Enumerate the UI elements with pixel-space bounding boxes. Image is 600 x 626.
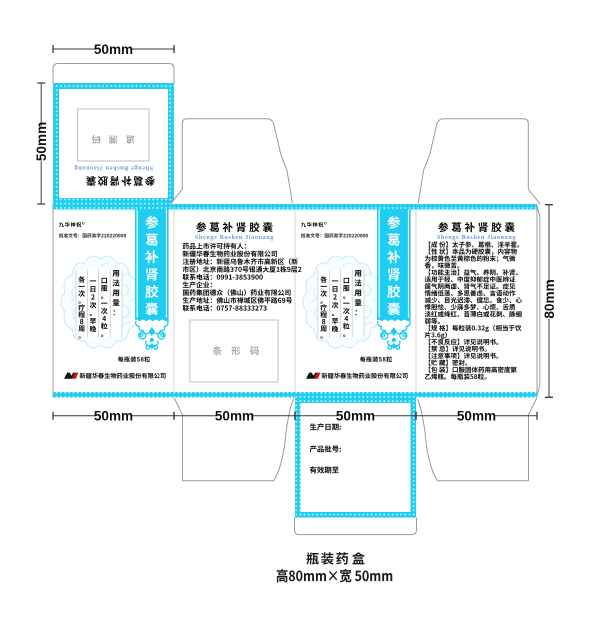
svg-text:Shenge Bushen Jiaonang: Shenge Bushen Jiaonang: [437, 234, 517, 241]
svg-text:50mm: 50mm: [215, 409, 254, 424]
svg-text:Shenge Bushen Jiaonang: Shenge Bushen Jiaonang: [74, 165, 154, 172]
svg-text:80mm: 80mm: [542, 279, 557, 318]
svg-text:50mm: 50mm: [34, 122, 49, 161]
svg-text:50mm: 50mm: [336, 409, 375, 424]
svg-text:50mm: 50mm: [457, 409, 496, 424]
svg-text:Shenge Bushen Jiaonang: Shenge Bushen Jiaonang: [195, 234, 275, 241]
svg-text:50mm: 50mm: [94, 409, 133, 424]
svg-text:50mm: 50mm: [94, 42, 133, 57]
